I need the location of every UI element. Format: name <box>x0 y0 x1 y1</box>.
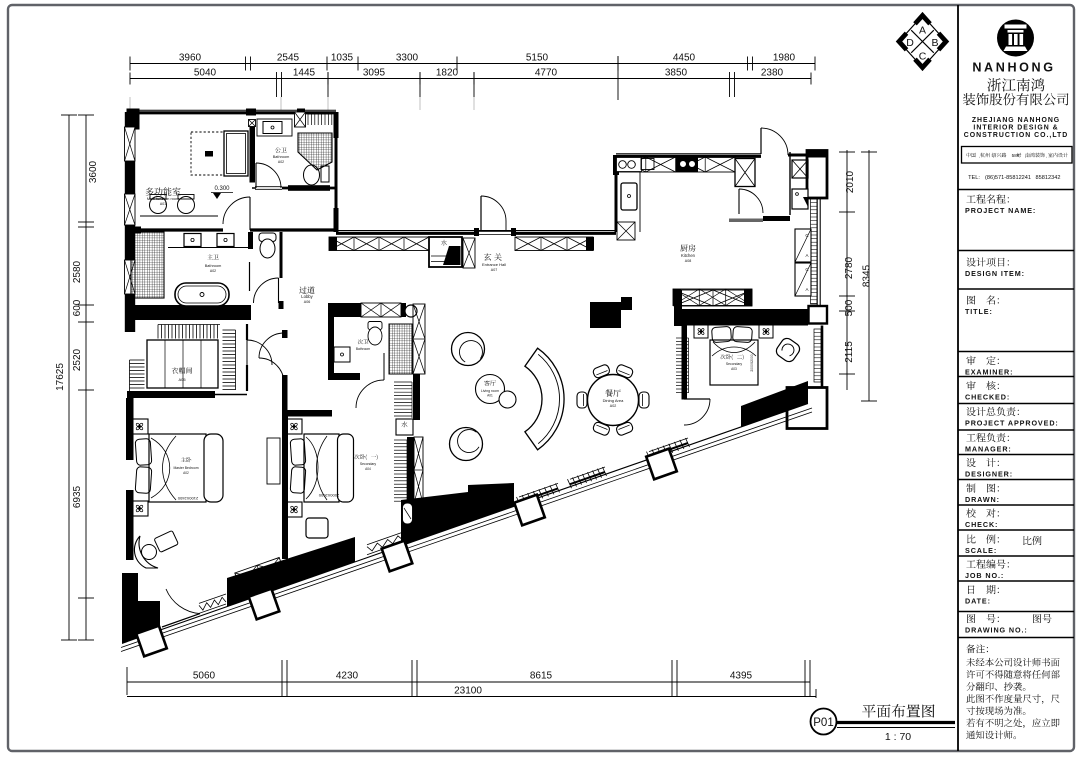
svg-text:85812342: 85812342 <box>1036 175 1061 181</box>
svg-text:A08: A08 <box>685 259 691 263</box>
svg-text:A01: A01 <box>487 394 493 398</box>
svg-text:500: 500 <box>844 299 855 316</box>
svg-text:1035: 1035 <box>331 53 354 64</box>
svg-text:1820: 1820 <box>436 68 459 79</box>
svg-text:ZHEJIANG NANHONG: ZHEJIANG NANHONG <box>972 117 1060 124</box>
svg-text:4395: 4395 <box>730 671 753 682</box>
svg-text:586: 586 <box>1012 153 1020 158</box>
svg-text:4230: 4230 <box>336 671 359 682</box>
svg-text:A: A <box>805 253 808 258</box>
svg-text:Bathroom: Bathroom <box>273 155 289 159</box>
svg-text:A02: A02 <box>210 269 216 273</box>
svg-text:DESIGNER:: DESIGNER: <box>965 470 1013 479</box>
svg-text:JOB NO.:: JOB NO.: <box>965 571 1004 580</box>
svg-text:A02: A02 <box>610 404 616 408</box>
svg-text:3600: 3600 <box>88 160 99 183</box>
svg-text:DATE:: DATE: <box>965 597 991 606</box>
svg-text:CHECKED:: CHECKED: <box>965 393 1010 402</box>
svg-text:CHECK:: CHECK: <box>965 520 998 529</box>
svg-text:Multi-function room: Multi-function room <box>147 197 179 201</box>
svg-text:Bathroom: Bathroom <box>356 347 371 351</box>
svg-text:INTERIOR DESIGN &: INTERIOR DESIGN & <box>973 125 1058 132</box>
svg-text:.: . <box>979 154 980 160</box>
svg-text:(86)571-85812241: (86)571-85812241 <box>985 175 1031 181</box>
svg-text:PROJECT NAME:: PROJECT NAME: <box>965 206 1036 215</box>
svg-text:TITLE:: TITLE: <box>965 307 993 316</box>
svg-text:1445: 1445 <box>293 68 316 79</box>
svg-text:4450: 4450 <box>673 53 696 64</box>
svg-text:Living room: Living room <box>481 389 499 393</box>
svg-text:0.300: 0.300 <box>214 186 230 192</box>
svg-text:CONSTRUCTION CO.,LTD: CONSTRUCTION CO.,LTD <box>964 132 1068 139</box>
svg-text:8345: 8345 <box>862 264 873 287</box>
svg-text:A: A <box>919 25 926 37</box>
svg-text:5040: 5040 <box>194 68 217 79</box>
svg-text:Secondary: Secondary <box>360 462 377 466</box>
svg-text:EXAMINER:: EXAMINER: <box>965 368 1013 377</box>
svg-text:4770: 4770 <box>535 68 558 79</box>
svg-text:A03: A03 <box>731 367 737 371</box>
svg-text:2100X2400: 2100X2400 <box>177 496 198 501</box>
svg-text:3850: 3850 <box>665 68 688 79</box>
svg-text:Bathroom: Bathroom <box>205 264 221 268</box>
svg-text:Entrance Hall: Entrance Hall <box>482 262 506 267</box>
svg-text:3095: 3095 <box>363 68 386 79</box>
svg-text:8615: 8615 <box>530 671 553 682</box>
svg-text:1 : 70: 1 : 70 <box>885 731 911 743</box>
svg-text:3960: 3960 <box>179 53 202 64</box>
svg-text:A01: A01 <box>160 202 166 206</box>
svg-text:23100: 23100 <box>454 686 482 697</box>
svg-text:NANHONG: NANHONG <box>972 61 1055 75</box>
svg-text:SCALE:: SCALE: <box>965 546 997 555</box>
svg-text:C: C <box>919 51 927 63</box>
svg-text:Secondary: Secondary <box>726 362 743 366</box>
svg-text:2000X2000: 2000X2000 <box>318 493 339 498</box>
svg-text:A04: A04 <box>365 467 371 471</box>
svg-text:TEL:: TEL: <box>968 175 980 181</box>
svg-text:3300: 3300 <box>396 53 419 64</box>
svg-text:17625: 17625 <box>55 363 66 391</box>
svg-text:B: B <box>931 37 938 49</box>
svg-text:2115: 2115 <box>844 341 855 363</box>
svg-text:Master Bedroom: Master Bedroom <box>173 466 198 470</box>
svg-text:A06: A06 <box>304 300 310 304</box>
svg-text:A: A <box>805 287 808 292</box>
svg-text:P01: P01 <box>813 717 833 729</box>
svg-text:DRAWN:: DRAWN: <box>965 495 1000 504</box>
svg-text:2010: 2010 <box>845 170 856 193</box>
svg-text:Dining Area: Dining Area <box>603 398 624 403</box>
svg-text:A07: A07 <box>491 268 497 272</box>
svg-text:2580: 2580 <box>72 260 83 283</box>
svg-text:DESIGN ITEM:: DESIGN ITEM: <box>965 269 1025 278</box>
svg-text:5060: 5060 <box>193 671 216 682</box>
svg-text:5150: 5150 <box>526 53 549 64</box>
svg-text:2545: 2545 <box>277 53 300 64</box>
svg-text:2380: 2380 <box>761 68 784 79</box>
svg-text:DRAWING NO.:: DRAWING NO.: <box>965 626 1028 635</box>
svg-text:1980: 1980 <box>773 53 796 64</box>
svg-text:2000X2000: 2000X2000 <box>750 354 754 371</box>
svg-text:PROJECT APPROVED:: PROJECT APPROVED: <box>965 419 1059 428</box>
svg-text:Lobby: Lobby <box>301 294 313 299</box>
svg-text:A05: A05 <box>178 377 186 382</box>
svg-text:A02: A02 <box>278 160 284 164</box>
svg-text:6935: 6935 <box>72 485 83 508</box>
svg-text:MANAGER:: MANAGER: <box>965 445 1012 454</box>
svg-text:Kitchen: Kitchen <box>681 253 696 258</box>
svg-text:A02: A02 <box>183 471 189 475</box>
svg-text:2520: 2520 <box>72 348 83 371</box>
svg-text:600: 600 <box>72 299 83 316</box>
svg-text:D: D <box>906 37 914 49</box>
svg-text:.: . <box>1046 154 1047 160</box>
svg-text:2780: 2780 <box>844 256 855 279</box>
